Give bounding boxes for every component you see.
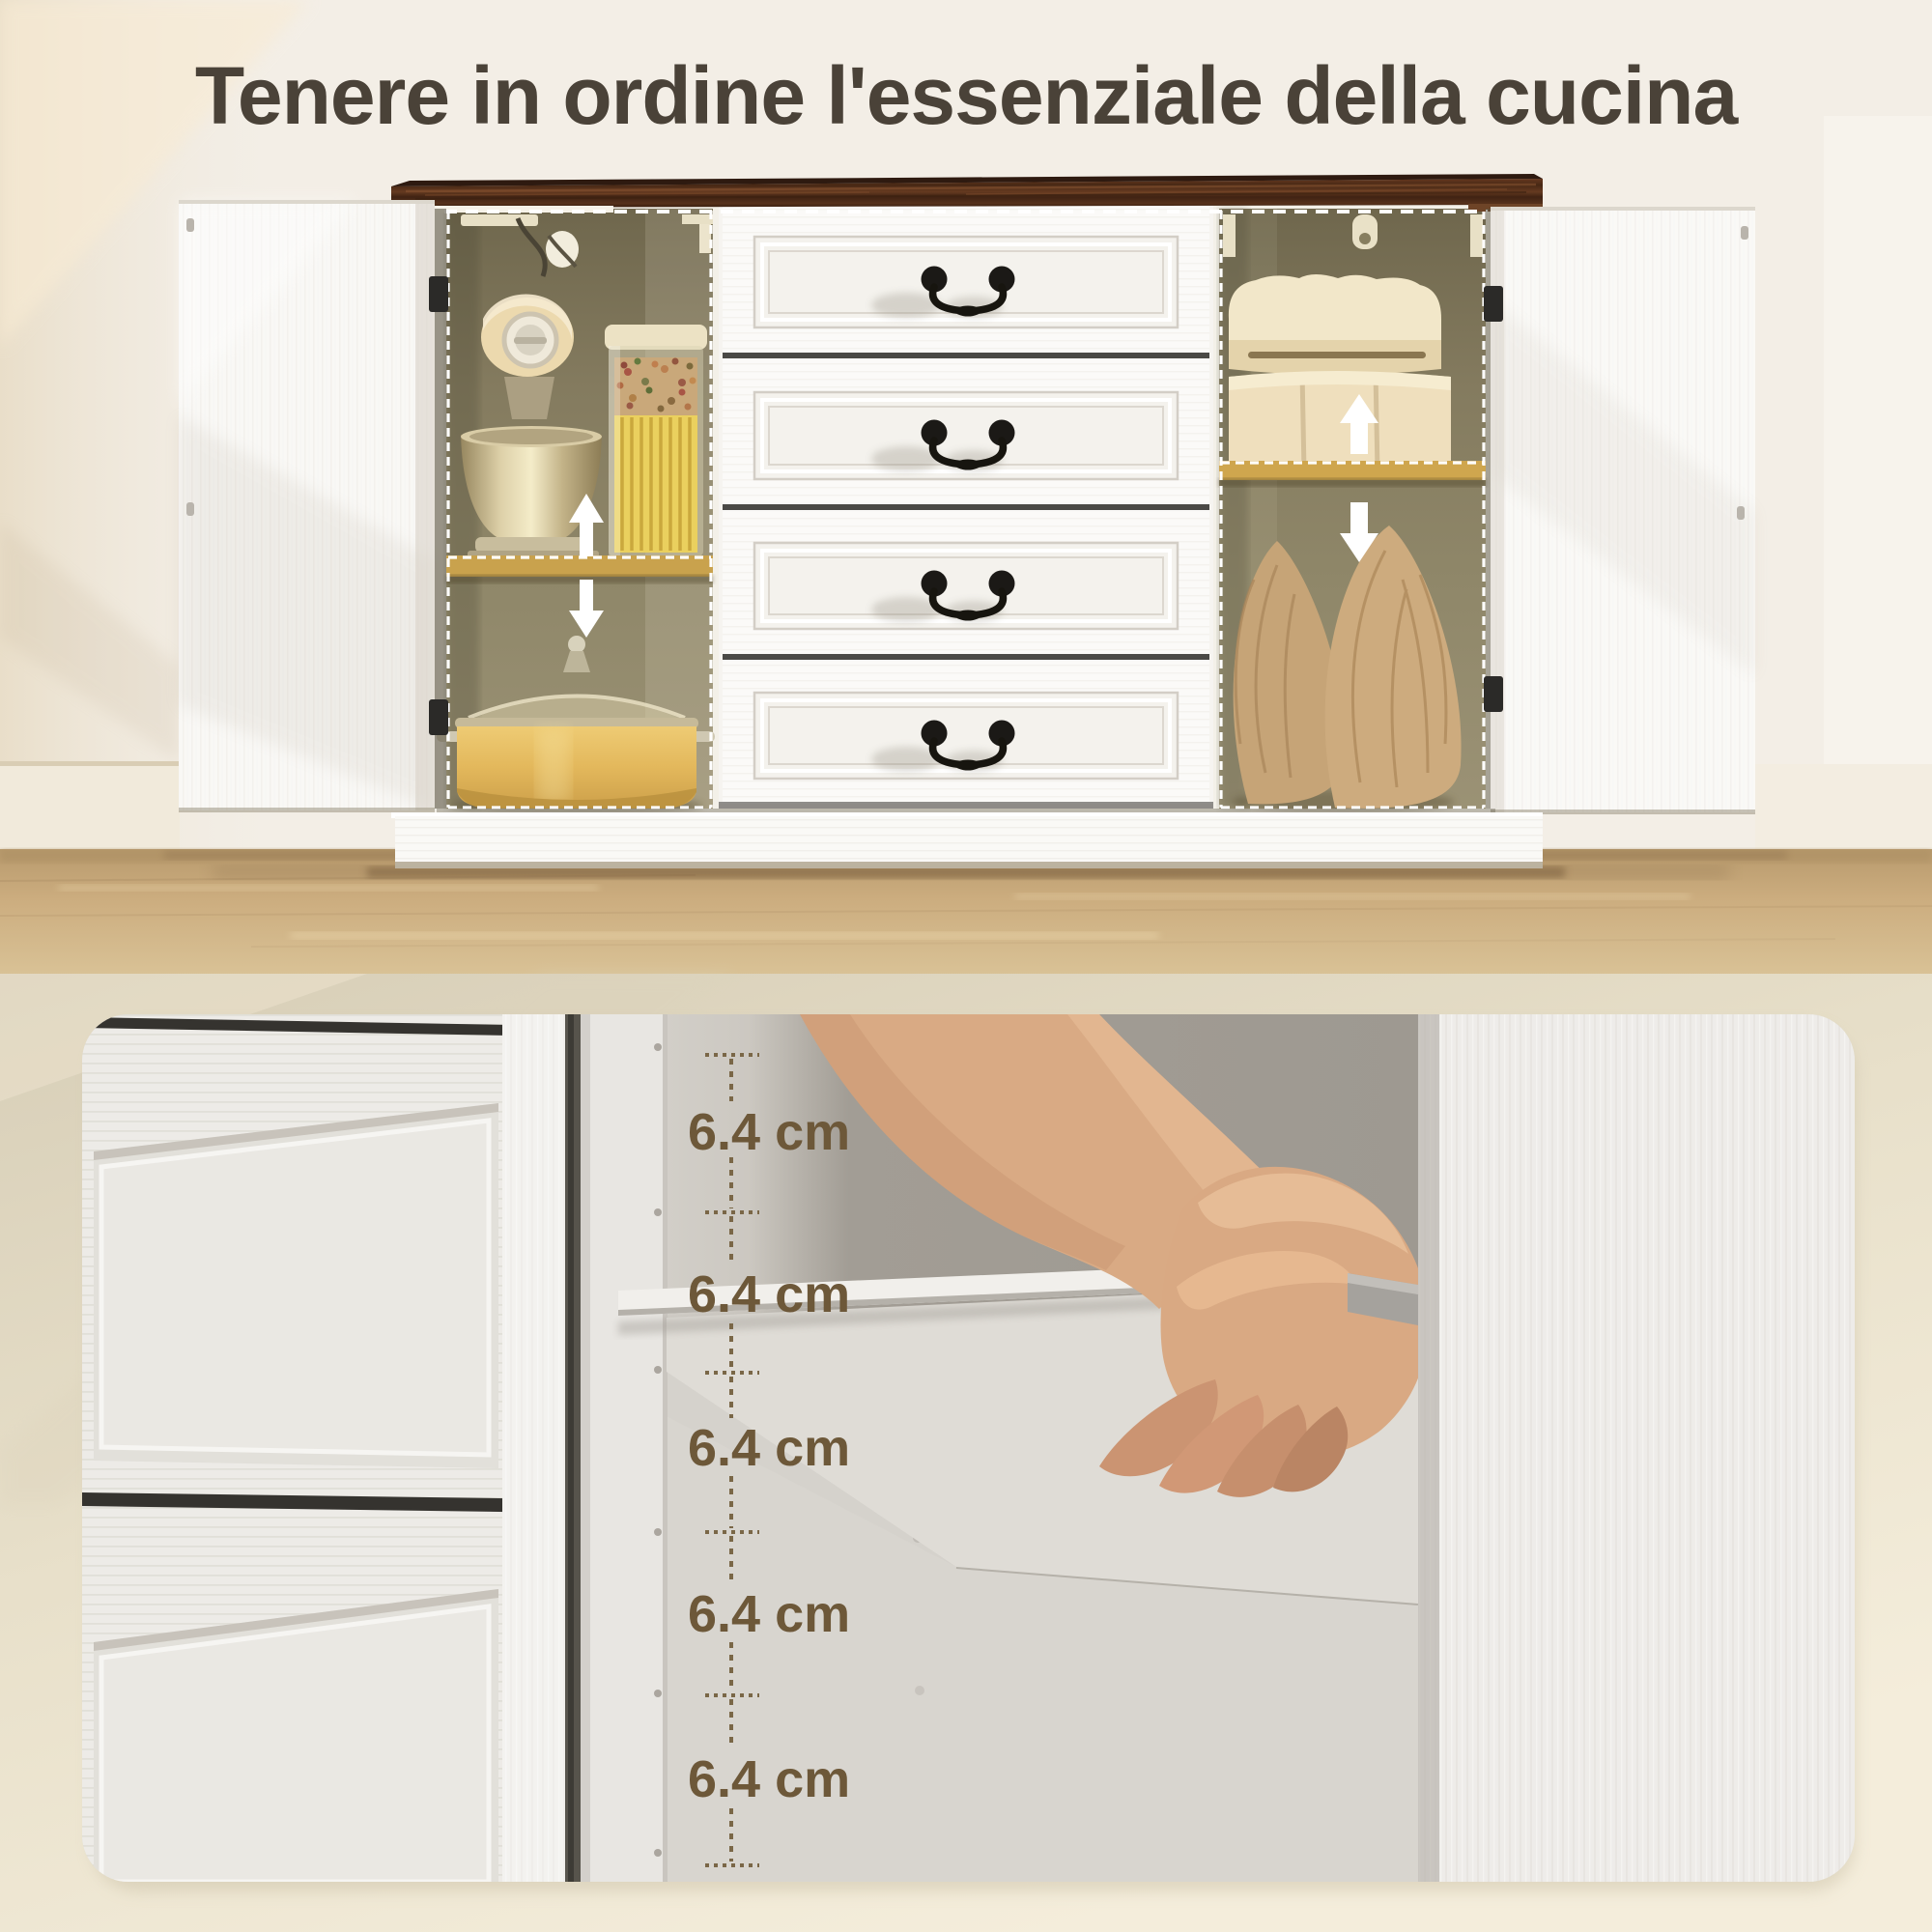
svg-text:Tenere in ordine l'essenziale: Tenere in ordine l'essenziale della cuci… — [195, 50, 1740, 141]
svg-text:6.4 cm: 6.4 cm — [688, 1265, 850, 1323]
svg-text:6.4 cm: 6.4 cm — [688, 1419, 850, 1477]
svg-text:6.4 cm: 6.4 cm — [688, 1585, 850, 1643]
svg-text:6.4 cm: 6.4 cm — [688, 1750, 850, 1808]
svg-text:6.4 cm: 6.4 cm — [688, 1103, 850, 1161]
